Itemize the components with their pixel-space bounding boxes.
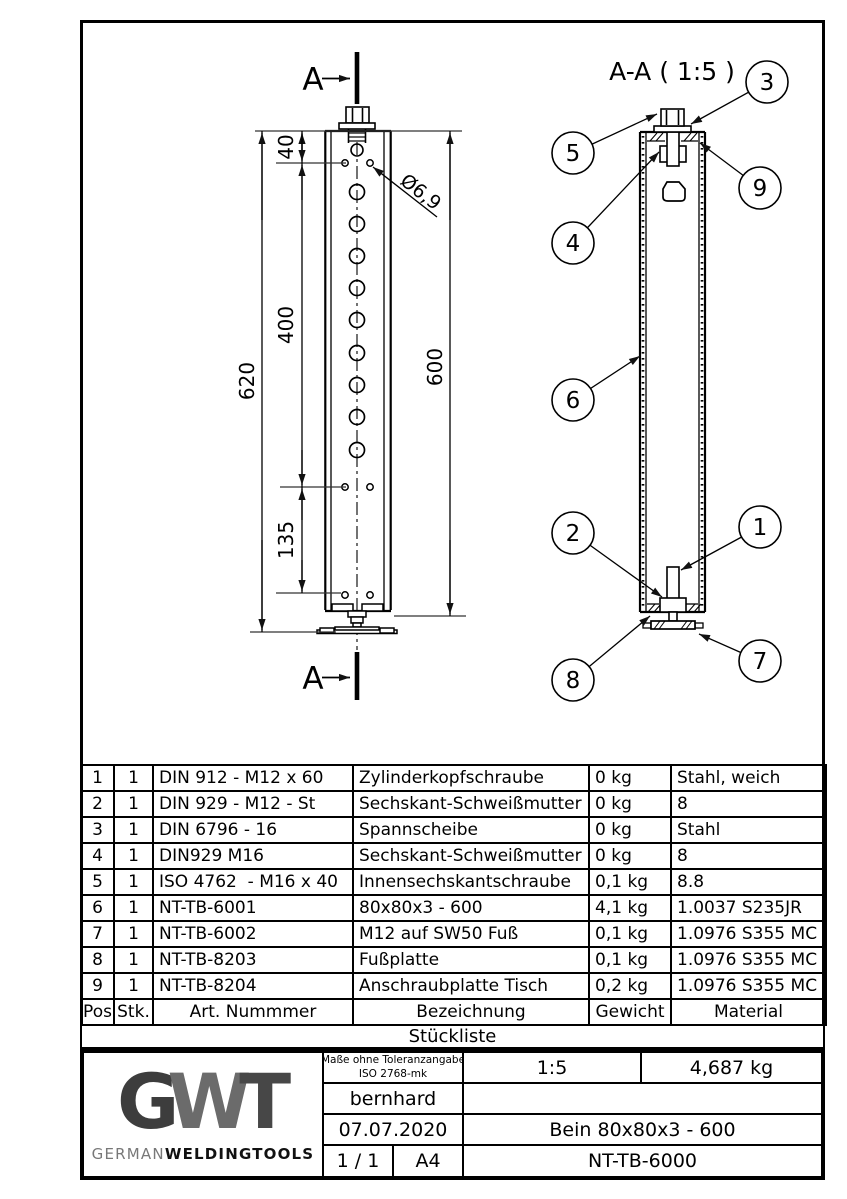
bom-row-3: 3 1 DIN 6796 - 16 Spannscheibe 0 kg Stah… <box>81 817 826 843</box>
dim-400-label: 400 <box>274 306 298 344</box>
bom-cell-part-number: NT-TB-8203 <box>153 947 353 973</box>
section-view-title: A-A ( 1:5 ) <box>609 57 735 86</box>
paper-format-cell: A4 <box>393 1145 463 1177</box>
bom-cell-weight: 0,1 kg <box>589 921 671 947</box>
dim-135-label: 135 <box>274 521 298 559</box>
bom-cell-qty: 1 <box>114 921 153 947</box>
bom-cell-pos: 6 <box>81 895 114 921</box>
balloon-2: 2 <box>552 512 594 554</box>
bom-cell-material: Stahl, weich <box>671 765 826 791</box>
balloon-4: 4 <box>552 222 594 264</box>
section-view <box>573 82 767 680</box>
balloon-7-label: 7 <box>753 649 768 675</box>
section-letter-top: A <box>302 62 323 98</box>
gwt-logo-letters: GWT <box>117 1068 279 1136</box>
balloon-7: 7 <box>739 640 781 682</box>
dim-620-label: 620 <box>235 362 259 400</box>
bom-title-bar: Stückliste <box>80 1024 825 1049</box>
bom-cell-pos: 1 <box>81 765 114 791</box>
balloon-6-label: 6 <box>566 388 581 414</box>
logo-letter-w: W <box>167 1057 239 1146</box>
bottom-assembly-section <box>643 567 703 629</box>
balloon-9: 9 <box>739 167 781 209</box>
bom-cell-material: 1.0976 S355 MC <box>671 947 826 973</box>
bom-title: Stückliste <box>409 1026 497 1047</box>
date-cell: 07.07.2020 <box>323 1114 463 1145</box>
bom-cell-pos: 7 <box>81 921 114 947</box>
bom-row-1: 1 1 DIN 912 - M12 x 60 Zylinderkopfschra… <box>81 765 826 791</box>
balloon-5: 5 <box>552 132 594 174</box>
bom-cell-material: 8 <box>671 791 826 817</box>
bom-cell-qty: 1 <box>114 791 153 817</box>
hand-hole <box>663 182 685 201</box>
bom-cell-weight: 0 kg <box>589 791 671 817</box>
bom-cell-weight: 0,1 kg <box>589 947 671 973</box>
dim-40-label: 40 <box>274 134 298 159</box>
bom-cell-material: 1.0976 S355 MC <box>671 921 826 947</box>
company-name-light: GERMAN <box>92 1145 165 1163</box>
bom-cell-description: Sechskant-Schweißmutter <box>353 791 589 817</box>
bom-cell-material: 1.0037 S235JR <box>671 895 826 921</box>
bom-cell-description: 80x80x3 - 600 <box>353 895 589 921</box>
bom-cell-description: Anschraubplatte Tisch <box>353 973 589 999</box>
bom-cell-part-number: DIN 6796 - 16 <box>153 817 353 843</box>
bom-header-weight: Gewicht <box>589 999 671 1025</box>
logo-letter-g: G <box>117 1057 167 1146</box>
bom-cell-qty: 1 <box>114 947 153 973</box>
company-name-bold: WELDINGTOOLS <box>165 1145 314 1163</box>
bom-cell-description: Innensechskantschraube <box>353 869 589 895</box>
bom-cell-weight: 0 kg <box>589 817 671 843</box>
balloon-8: 8 <box>552 659 594 701</box>
empty-cell <box>463 1083 822 1114</box>
balloon-8-label: 8 <box>566 668 581 694</box>
bom-cell-description: Fußplatte <box>353 947 589 973</box>
bom-cell-part-number: DIN929 M16 <box>153 843 353 869</box>
bom-cell-pos: 5 <box>81 869 114 895</box>
section-cut-line-top <box>355 52 360 104</box>
balloon-9-label: 9 <box>753 176 768 202</box>
scale-cell: 1:5 <box>463 1052 641 1083</box>
tolerance-note-cell: Maße ohne Toleranzangabe ISO 2768-mk <box>323 1052 463 1083</box>
bom-row-9: 9 1 NT-TB-8204 Anschraubplatte Tisch 0,2… <box>81 973 826 999</box>
balloon-1: 1 <box>739 506 781 548</box>
bom-row-6: 6 1 NT-TB-6001 80x80x3 - 600 4,1 kg 1.00… <box>81 895 826 921</box>
balloon-4-label: 4 <box>566 231 581 257</box>
bom-cell-part-number: DIN 912 - M12 x 60 <box>153 765 353 791</box>
bom-cell-description: M12 auf SW50 Fuß <box>353 921 589 947</box>
bom-cell-weight: 0,2 kg <box>589 973 671 999</box>
bom-cell-part-number: NT-TB-8204 <box>153 973 353 999</box>
part-title-cell: Bein 80x80x3 - 600 <box>463 1114 822 1145</box>
bom-cell-weight: 0 kg <box>589 765 671 791</box>
bom-cell-material: 8.8 <box>671 869 826 895</box>
bom-row-5: 5 1 ISO 4762 - M16 x 40 Innensechskantsc… <box>81 869 826 895</box>
hole-dia-label: Ø6,9 <box>396 170 445 215</box>
balloon-3: 3 <box>746 61 788 103</box>
tolerance-line-2: ISO 2768-mk <box>359 1068 427 1081</box>
bom-cell-weight: 0,1 kg <box>589 869 671 895</box>
author-cell: bernhard <box>323 1083 463 1114</box>
bom-cell-material: Stahl <box>671 817 826 843</box>
bom-cell-pos: 9 <box>81 973 114 999</box>
bom-cell-qty: 1 <box>114 973 153 999</box>
bom-cell-material: 1.0976 S355 MC <box>671 973 826 999</box>
bom-cell-qty: 1 <box>114 869 153 895</box>
bom-cell-qty: 1 <box>114 843 153 869</box>
balloon-6: 6 <box>552 379 594 421</box>
bom-cell-qty: 1 <box>114 765 153 791</box>
bom-header-description: Bezeichnung <box>353 999 589 1025</box>
company-logo: GWT GERMANWELDINGTOOLS <box>83 1052 323 1177</box>
sheet-number-cell: 1 / 1 <box>323 1145 393 1177</box>
bom-header-part-number: Art. Nummmer <box>153 999 353 1025</box>
bom-cell-pos: 3 <box>81 817 114 843</box>
bom-cell-pos: 4 <box>81 843 114 869</box>
bom-cell-weight: 0 kg <box>589 843 671 869</box>
bom-header-material: Material <box>671 999 826 1025</box>
bom-cell-description: Sechskant-Schweißmutter <box>353 843 589 869</box>
bom-row-2: 2 1 DIN 929 - M12 - St Sechskant-Schweiß… <box>81 791 826 817</box>
balloon-3-label: 3 <box>760 70 775 96</box>
bom-row-7: 7 1 NT-TB-6002 M12 auf SW50 Fuß 0,1 kg 1… <box>81 921 826 947</box>
bom-header-row: Pos Stk. Art. Nummmer Bezeichnung Gewich… <box>81 999 826 1025</box>
bom-cell-description: Zylinderkopfschraube <box>353 765 589 791</box>
bom-cell-part-number: ISO 4762 - M16 x 40 <box>153 869 353 895</box>
bom-cell-pos: 2 <box>81 791 114 817</box>
bom-table: 1 1 DIN 912 - M12 x 60 Zylinderkopfschra… <box>80 764 827 1026</box>
drawing-number-cell: NT-TB-6000 <box>463 1145 822 1177</box>
bom-cell-qty: 1 <box>114 895 153 921</box>
company-name: GERMANWELDINGTOOLS <box>92 1145 315 1163</box>
section-letter-bottom: A <box>302 661 323 697</box>
bom-cell-part-number: NT-TB-6002 <box>153 921 353 947</box>
balloon-2-label: 2 <box>566 521 581 547</box>
section-cut-line-bottom <box>355 652 360 700</box>
bom-row-4: 4 1 DIN929 M16 Sechskant-Schweißmutter 0… <box>81 843 826 869</box>
bom-row-8: 8 1 NT-TB-8203 Fußplatte 0,1 kg 1.0976 S… <box>81 947 826 973</box>
dim-600-label: 600 <box>423 348 447 386</box>
balloon-1-label: 1 <box>753 515 768 541</box>
bom-cell-part-number: NT-TB-6001 <box>153 895 353 921</box>
bom-cell-material: 8 <box>671 843 826 869</box>
weight-cell: 4,687 kg <box>641 1052 822 1083</box>
logo-letter-t: T <box>239 1057 279 1146</box>
bom-cell-weight: 4,1 kg <box>589 895 671 921</box>
bom-cell-description: Spannscheibe <box>353 817 589 843</box>
tolerance-line-1: Maße ohne Toleranzangabe <box>323 1054 463 1067</box>
drawing-sheet: { "sheet": { "section_marker": "A", "fro… <box>0 0 847 1199</box>
title-block: GWT GERMANWELDINGTOOLS Maße ohne Toleran… <box>80 1049 825 1180</box>
bom-cell-pos: 8 <box>81 947 114 973</box>
bom-cell-qty: 1 <box>114 817 153 843</box>
bom-header-pos: Pos <box>81 999 114 1025</box>
bom-cell-part-number: DIN 929 - M12 - St <box>153 791 353 817</box>
bom-header-qty: Stk. <box>114 999 153 1025</box>
balloon-5-label: 5 <box>566 141 581 167</box>
